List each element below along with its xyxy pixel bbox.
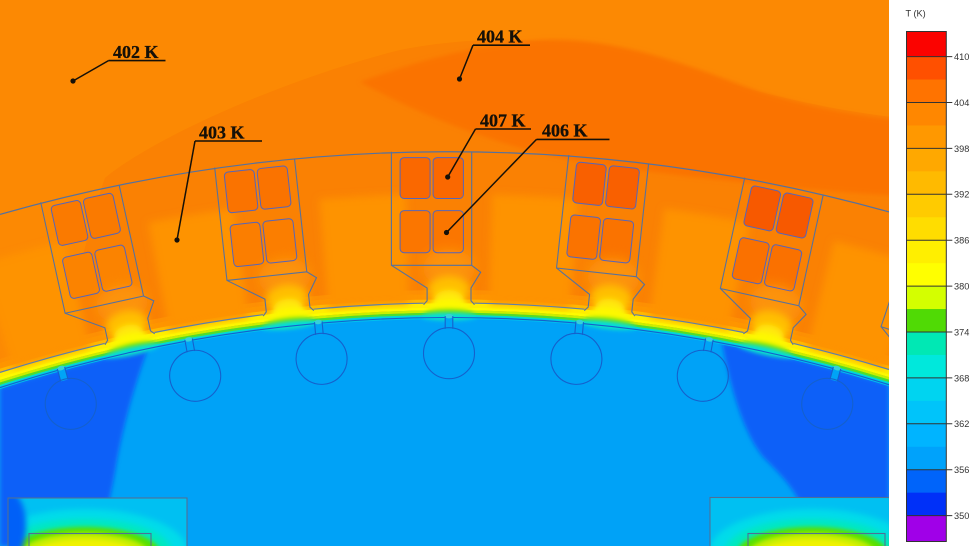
svg-text:404 K: 404 K: [477, 27, 523, 47]
svg-text:T (K): T (K): [906, 9, 926, 19]
svg-text:410: 410: [954, 52, 969, 62]
svg-text:402 K: 402 K: [113, 42, 159, 62]
svg-text:374: 374: [954, 327, 969, 337]
svg-text:392: 392: [954, 190, 969, 200]
svg-text:398: 398: [954, 144, 969, 154]
svg-text:356: 356: [954, 465, 969, 475]
svg-text:350: 350: [954, 511, 969, 521]
svg-text:386: 386: [954, 236, 969, 246]
svg-text:403 K: 403 K: [199, 123, 245, 143]
svg-text:404: 404: [954, 98, 969, 108]
svg-text:406 K: 406 K: [542, 121, 588, 141]
svg-text:362: 362: [954, 419, 969, 429]
svg-text:380: 380: [954, 282, 969, 292]
svg-text:407 K: 407 K: [480, 111, 526, 131]
svg-text:368: 368: [954, 373, 969, 383]
